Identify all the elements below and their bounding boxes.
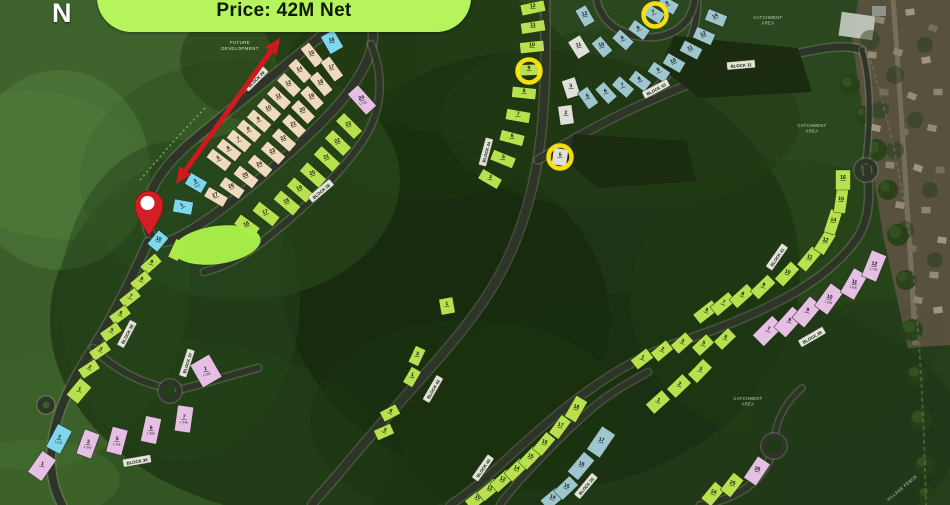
svg-text:16: 16: [840, 175, 846, 181]
subdivision-map: 1615141211109876536131171819202122232425…: [0, 0, 950, 505]
rooftop: [934, 89, 943, 96]
svg-text:CATCHMENT: CATCHMENT: [734, 396, 763, 401]
svg-text:AREA: AREA: [762, 21, 775, 26]
lot-block-41-16: 16: [836, 170, 851, 190]
rooftop: [867, 51, 877, 58]
rooftop: [929, 271, 939, 278]
lot-block-43-2: 2: [558, 105, 575, 126]
rooftop: [937, 236, 947, 244]
svg-text:AREA: AREA: [806, 129, 819, 134]
svg-text:CATCHMENT: CATCHMENT: [754, 15, 783, 20]
future-development-text: FUTURE: [230, 40, 250, 45]
svg-text:CATCHMENT: CATCHMENT: [798, 123, 827, 128]
pin-center-dot: [141, 196, 155, 210]
svg-text:1,448: 1,448: [180, 420, 188, 424]
lot-block-43-5: 5: [551, 148, 568, 167]
rooftop: [885, 161, 895, 169]
compass-north: N: [52, 0, 72, 29]
rooftop: [905, 8, 915, 16]
rooftop: [922, 207, 931, 214]
price-text: Price: 42M Net: [216, 0, 351, 22]
svg-text:1,389: 1,389: [147, 431, 155, 436]
lot-block-44-8: 8: [511, 86, 536, 99]
rooftop: [935, 166, 945, 173]
svg-text:AREA: AREA: [742, 402, 755, 407]
lot-block-36-7: 71,448: [174, 405, 193, 433]
svg-text:DEVELOPMENT: DEVELOPMENT: [221, 46, 259, 51]
price-callout: Price: 42M Net: [97, 0, 471, 32]
lot-block-42-1: 1: [439, 297, 456, 315]
rooftop: [899, 128, 909, 135]
map-canvas: 1615141211109876536131171819202122232425…: [0, 0, 950, 505]
svg-text:1,345: 1,345: [113, 442, 121, 447]
rooftop: [933, 306, 943, 314]
svg-text:FUTURE: FUTURE: [230, 40, 250, 45]
lot-block-44-10: 10: [519, 40, 544, 53]
svg-text:9: 9: [527, 65, 530, 71]
